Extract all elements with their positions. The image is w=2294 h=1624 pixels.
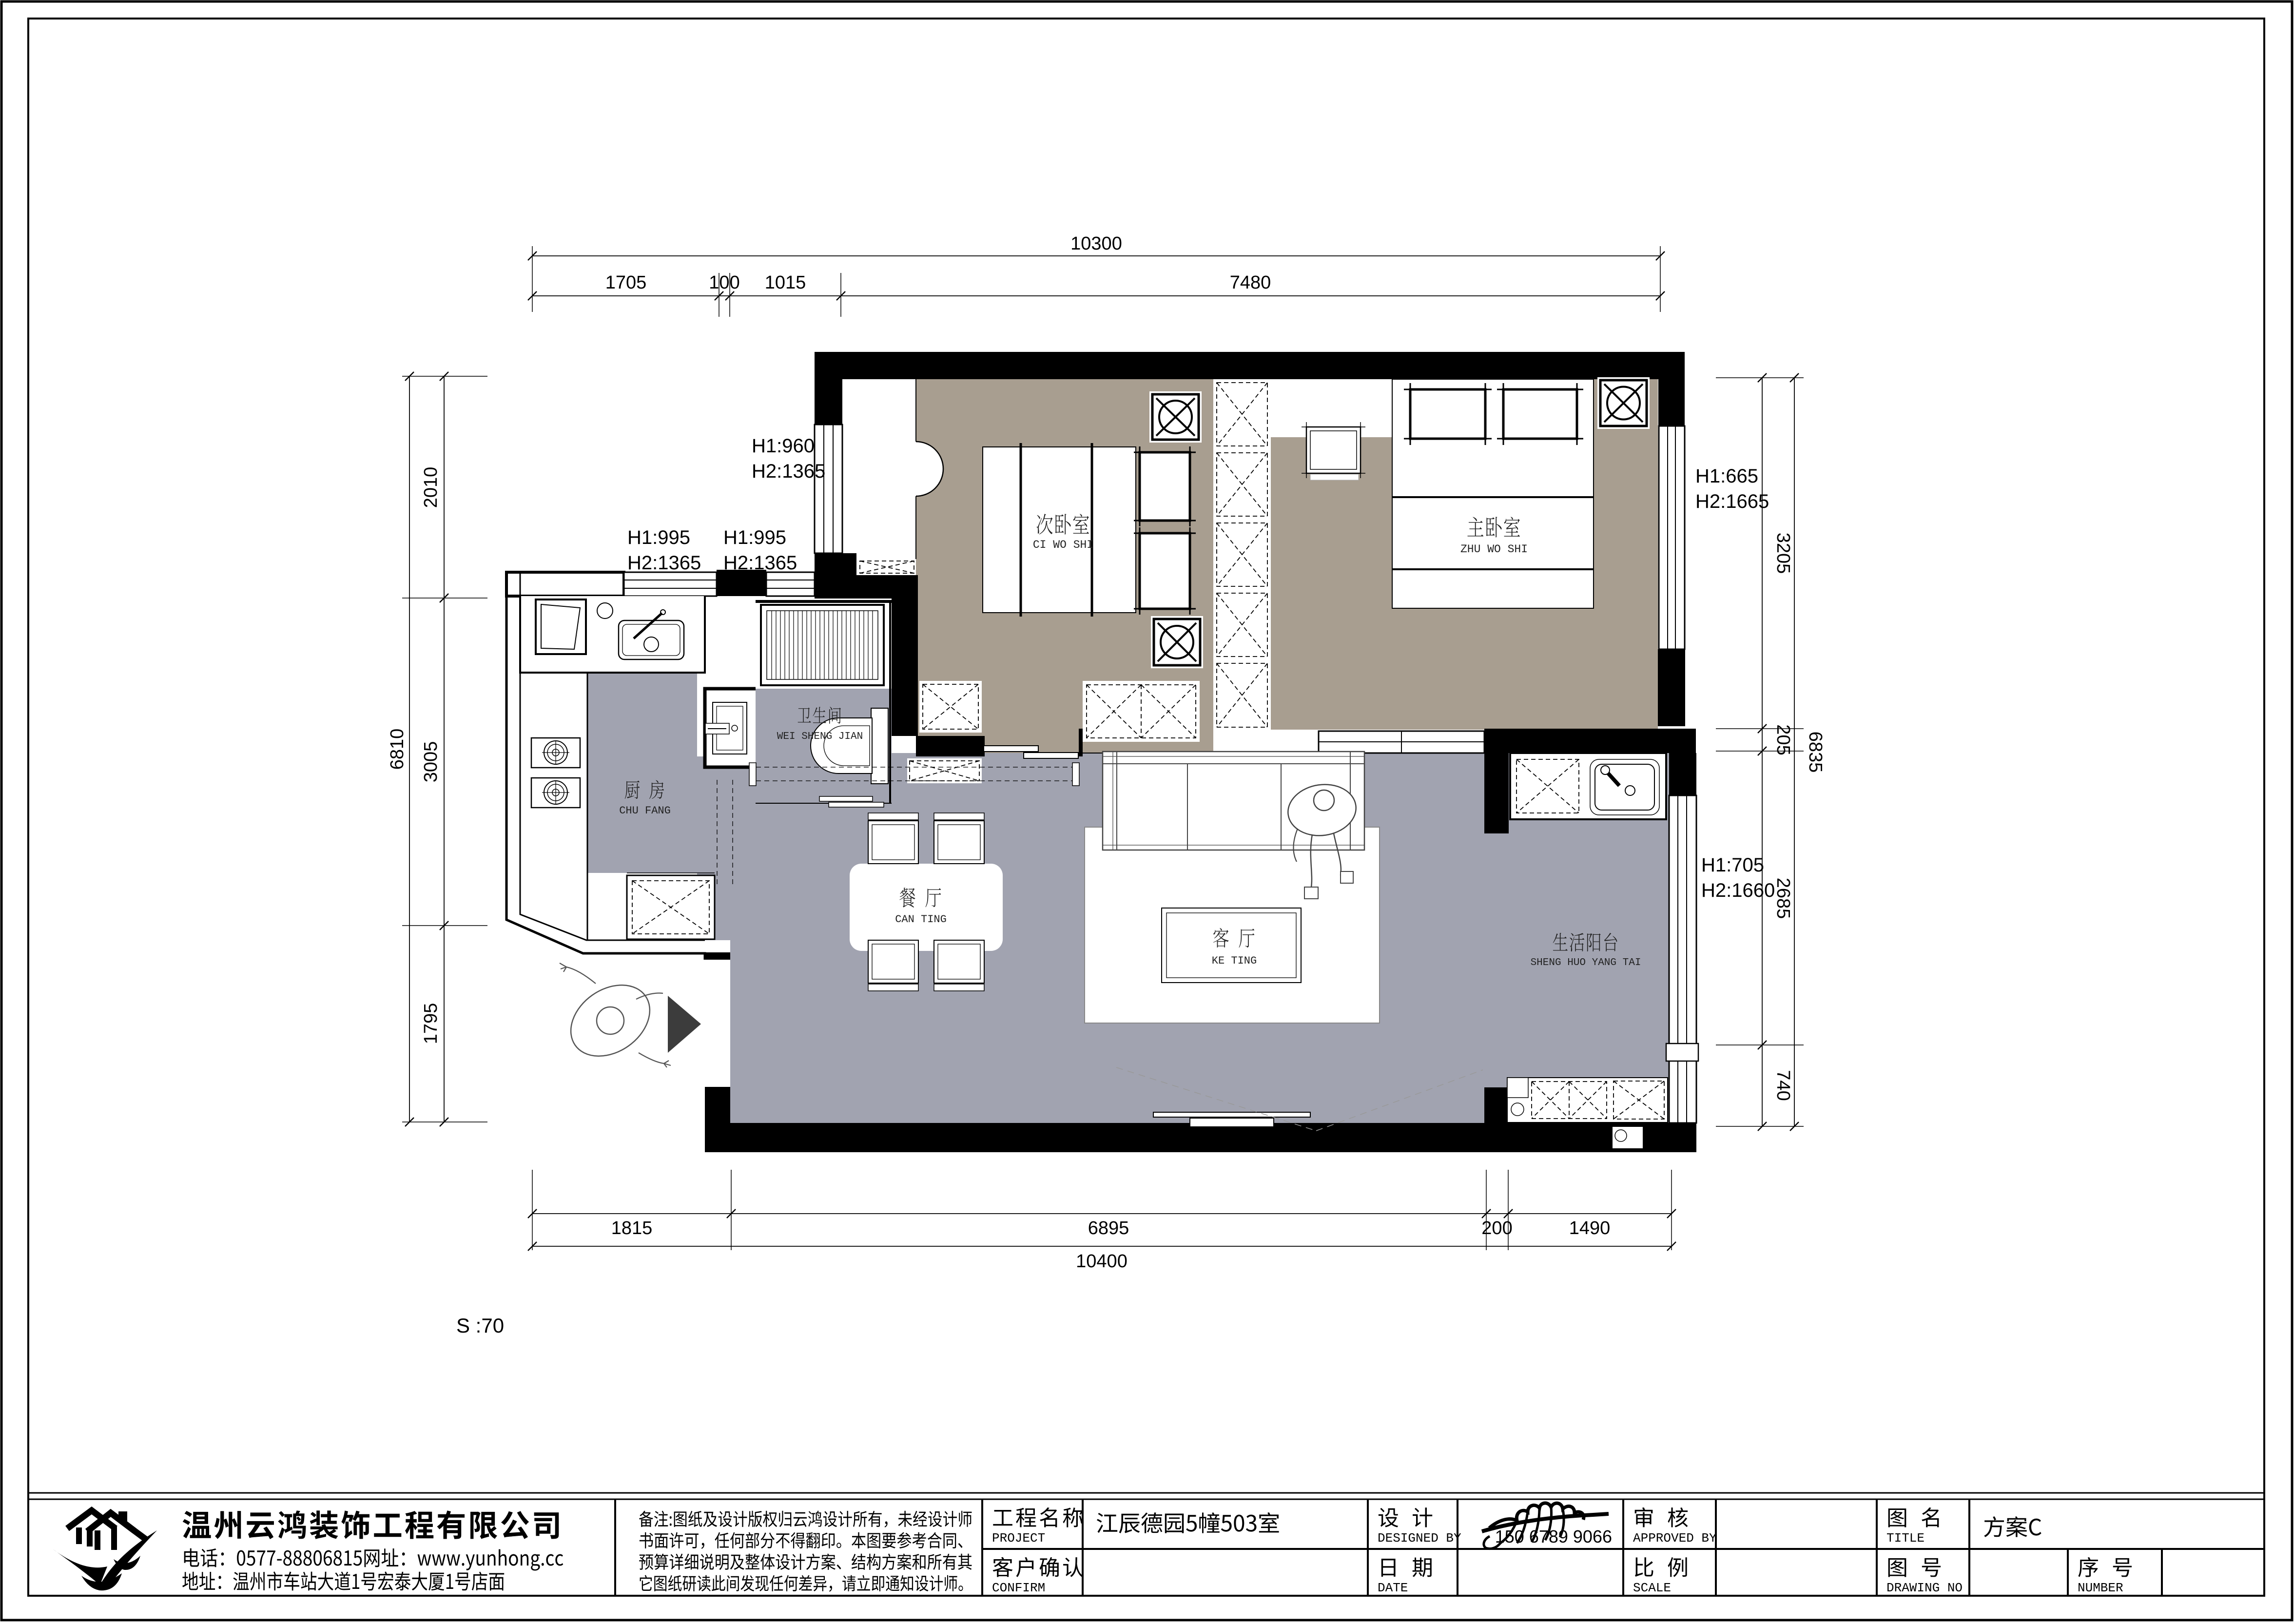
svg-text:2010: 2010 (421, 467, 441, 508)
svg-text:KE TING: KE TING (1212, 955, 1257, 967)
svg-text:10300: 10300 (1070, 233, 1122, 254)
svg-text:6895: 6895 (1088, 1218, 1129, 1238)
svg-text:H2:1365: H2:1365 (627, 552, 701, 574)
svg-text:2685: 2685 (1773, 878, 1793, 919)
svg-text:7480: 7480 (1230, 272, 1271, 293)
svg-text:6835: 6835 (1805, 732, 1826, 773)
svg-text:H2:1365: H2:1365 (752, 461, 825, 482)
svg-text:1705: 1705 (605, 272, 647, 293)
svg-text:CHU FANG: CHU FANG (619, 805, 671, 817)
svg-text:PROJECT: PROJECT (992, 1531, 1045, 1546)
svg-text:SCALE: SCALE (1633, 1581, 1671, 1595)
svg-text:H1:665: H1:665 (1695, 465, 1758, 487)
svg-text:ZHU WO SHI: ZHU WO SHI (1460, 543, 1528, 556)
svg-text:740: 740 (1773, 1070, 1793, 1101)
svg-text:3205: 3205 (1773, 533, 1793, 574)
svg-text:APPROVED BY: APPROVED BY (1633, 1531, 1717, 1546)
svg-text:DESIGNED BY: DESIGNED BY (1378, 1531, 1461, 1546)
svg-text:1815: 1815 (611, 1218, 653, 1238)
svg-text:H1:995: H1:995 (627, 527, 690, 548)
svg-text:H2:1365: H2:1365 (723, 552, 797, 574)
svg-text:3005: 3005 (421, 741, 441, 783)
svg-text:DRAWING NO: DRAWING NO (1886, 1581, 1963, 1595)
svg-text:10400: 10400 (1076, 1251, 1128, 1272)
svg-text:CONFIRM: CONFIRM (992, 1581, 1045, 1595)
svg-text:1795: 1795 (421, 1003, 441, 1044)
svg-text:6810: 6810 (387, 729, 408, 770)
svg-text:WEI SHENG JIAN: WEI SHENG JIAN (777, 731, 863, 742)
svg-text:H1:995: H1:995 (723, 527, 786, 548)
svg-text:1015: 1015 (765, 272, 806, 293)
svg-text:H2:1665: H2:1665 (1695, 491, 1769, 512)
svg-text:150 6789 9066: 150 6789 9066 (1495, 1527, 1612, 1547)
svg-text:SHENG HUO YANG TAI: SHENG HUO YANG TAI (1531, 957, 1641, 968)
svg-text:NUMBER: NUMBER (2078, 1581, 2123, 1595)
svg-text:CAN TING: CAN TING (895, 913, 947, 926)
svg-text:200: 200 (1481, 1218, 1512, 1238)
svg-text:H1:960: H1:960 (752, 435, 815, 457)
svg-text:DATE: DATE (1378, 1581, 1408, 1595)
svg-text:205: 205 (1773, 724, 1793, 755)
svg-text:H2:1660: H2:1660 (1701, 880, 1775, 901)
svg-text:S :70: S :70 (456, 1314, 504, 1337)
svg-text:CI WO SHI: CI WO SHI (1033, 539, 1093, 551)
svg-text:H1:705: H1:705 (1701, 854, 1764, 876)
svg-text:TITLE: TITLE (1886, 1531, 1925, 1546)
svg-text:100: 100 (709, 272, 739, 293)
svg-text:1490: 1490 (1569, 1218, 1611, 1238)
